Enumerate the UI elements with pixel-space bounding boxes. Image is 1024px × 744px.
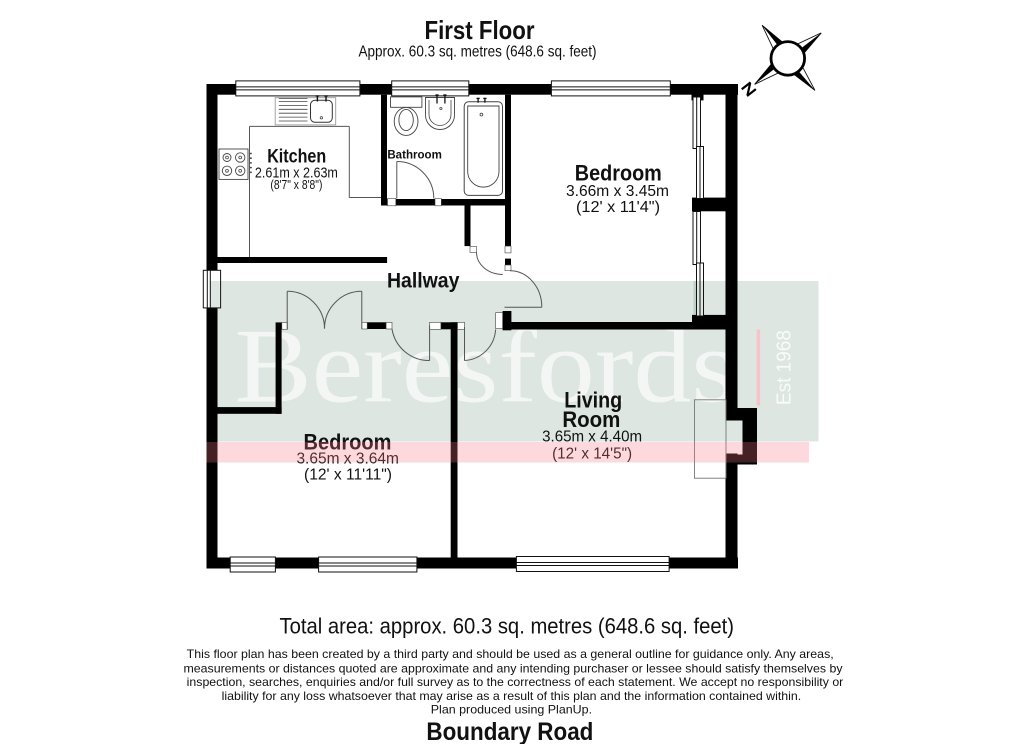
svg-text:This floor plan has been creat: This floor plan has been created by a th… — [187, 647, 834, 661]
svg-text:liability for any loss whatsoe: liability for any loss whatsoever that m… — [222, 689, 802, 703]
svg-text:Plan produced using PlanUp.: Plan produced using PlanUp. — [431, 702, 592, 716]
svg-text:Approx. 60.3 sq. metres (648.6: Approx. 60.3 sq. metres (648.6 sq. feet) — [359, 44, 597, 61]
svg-text:Boundary Road: Boundary Road — [426, 718, 593, 744]
svg-text:First Floor: First Floor — [425, 15, 535, 45]
svg-text:(8'7" x 8'8"): (8'7" x 8'8") — [270, 178, 322, 192]
svg-text:Hallway: Hallway — [387, 270, 460, 293]
svg-text:Bathroom: Bathroom — [387, 148, 442, 162]
svg-text:Est 1968: Est 1968 — [774, 330, 796, 405]
svg-text:(12' x 11'4"): (12' x 11'4") — [576, 199, 660, 216]
svg-text:(12' x 11'11"): (12' x 11'11") — [304, 467, 392, 484]
svg-text:Bedroom: Bedroom — [575, 160, 662, 185]
svg-text:Total area: approx. 60.3 sq. m: Total area: approx. 60.3 sq. metres (648… — [280, 614, 735, 639]
svg-text:measurements or distances quot: measurements or distances quoted are app… — [184, 661, 843, 675]
svg-text:inspection, searches, enquirie: inspection, searches, enquiries and/or f… — [187, 675, 844, 689]
svg-text:3.66m x 3.45m: 3.66m x 3.45m — [566, 183, 669, 200]
